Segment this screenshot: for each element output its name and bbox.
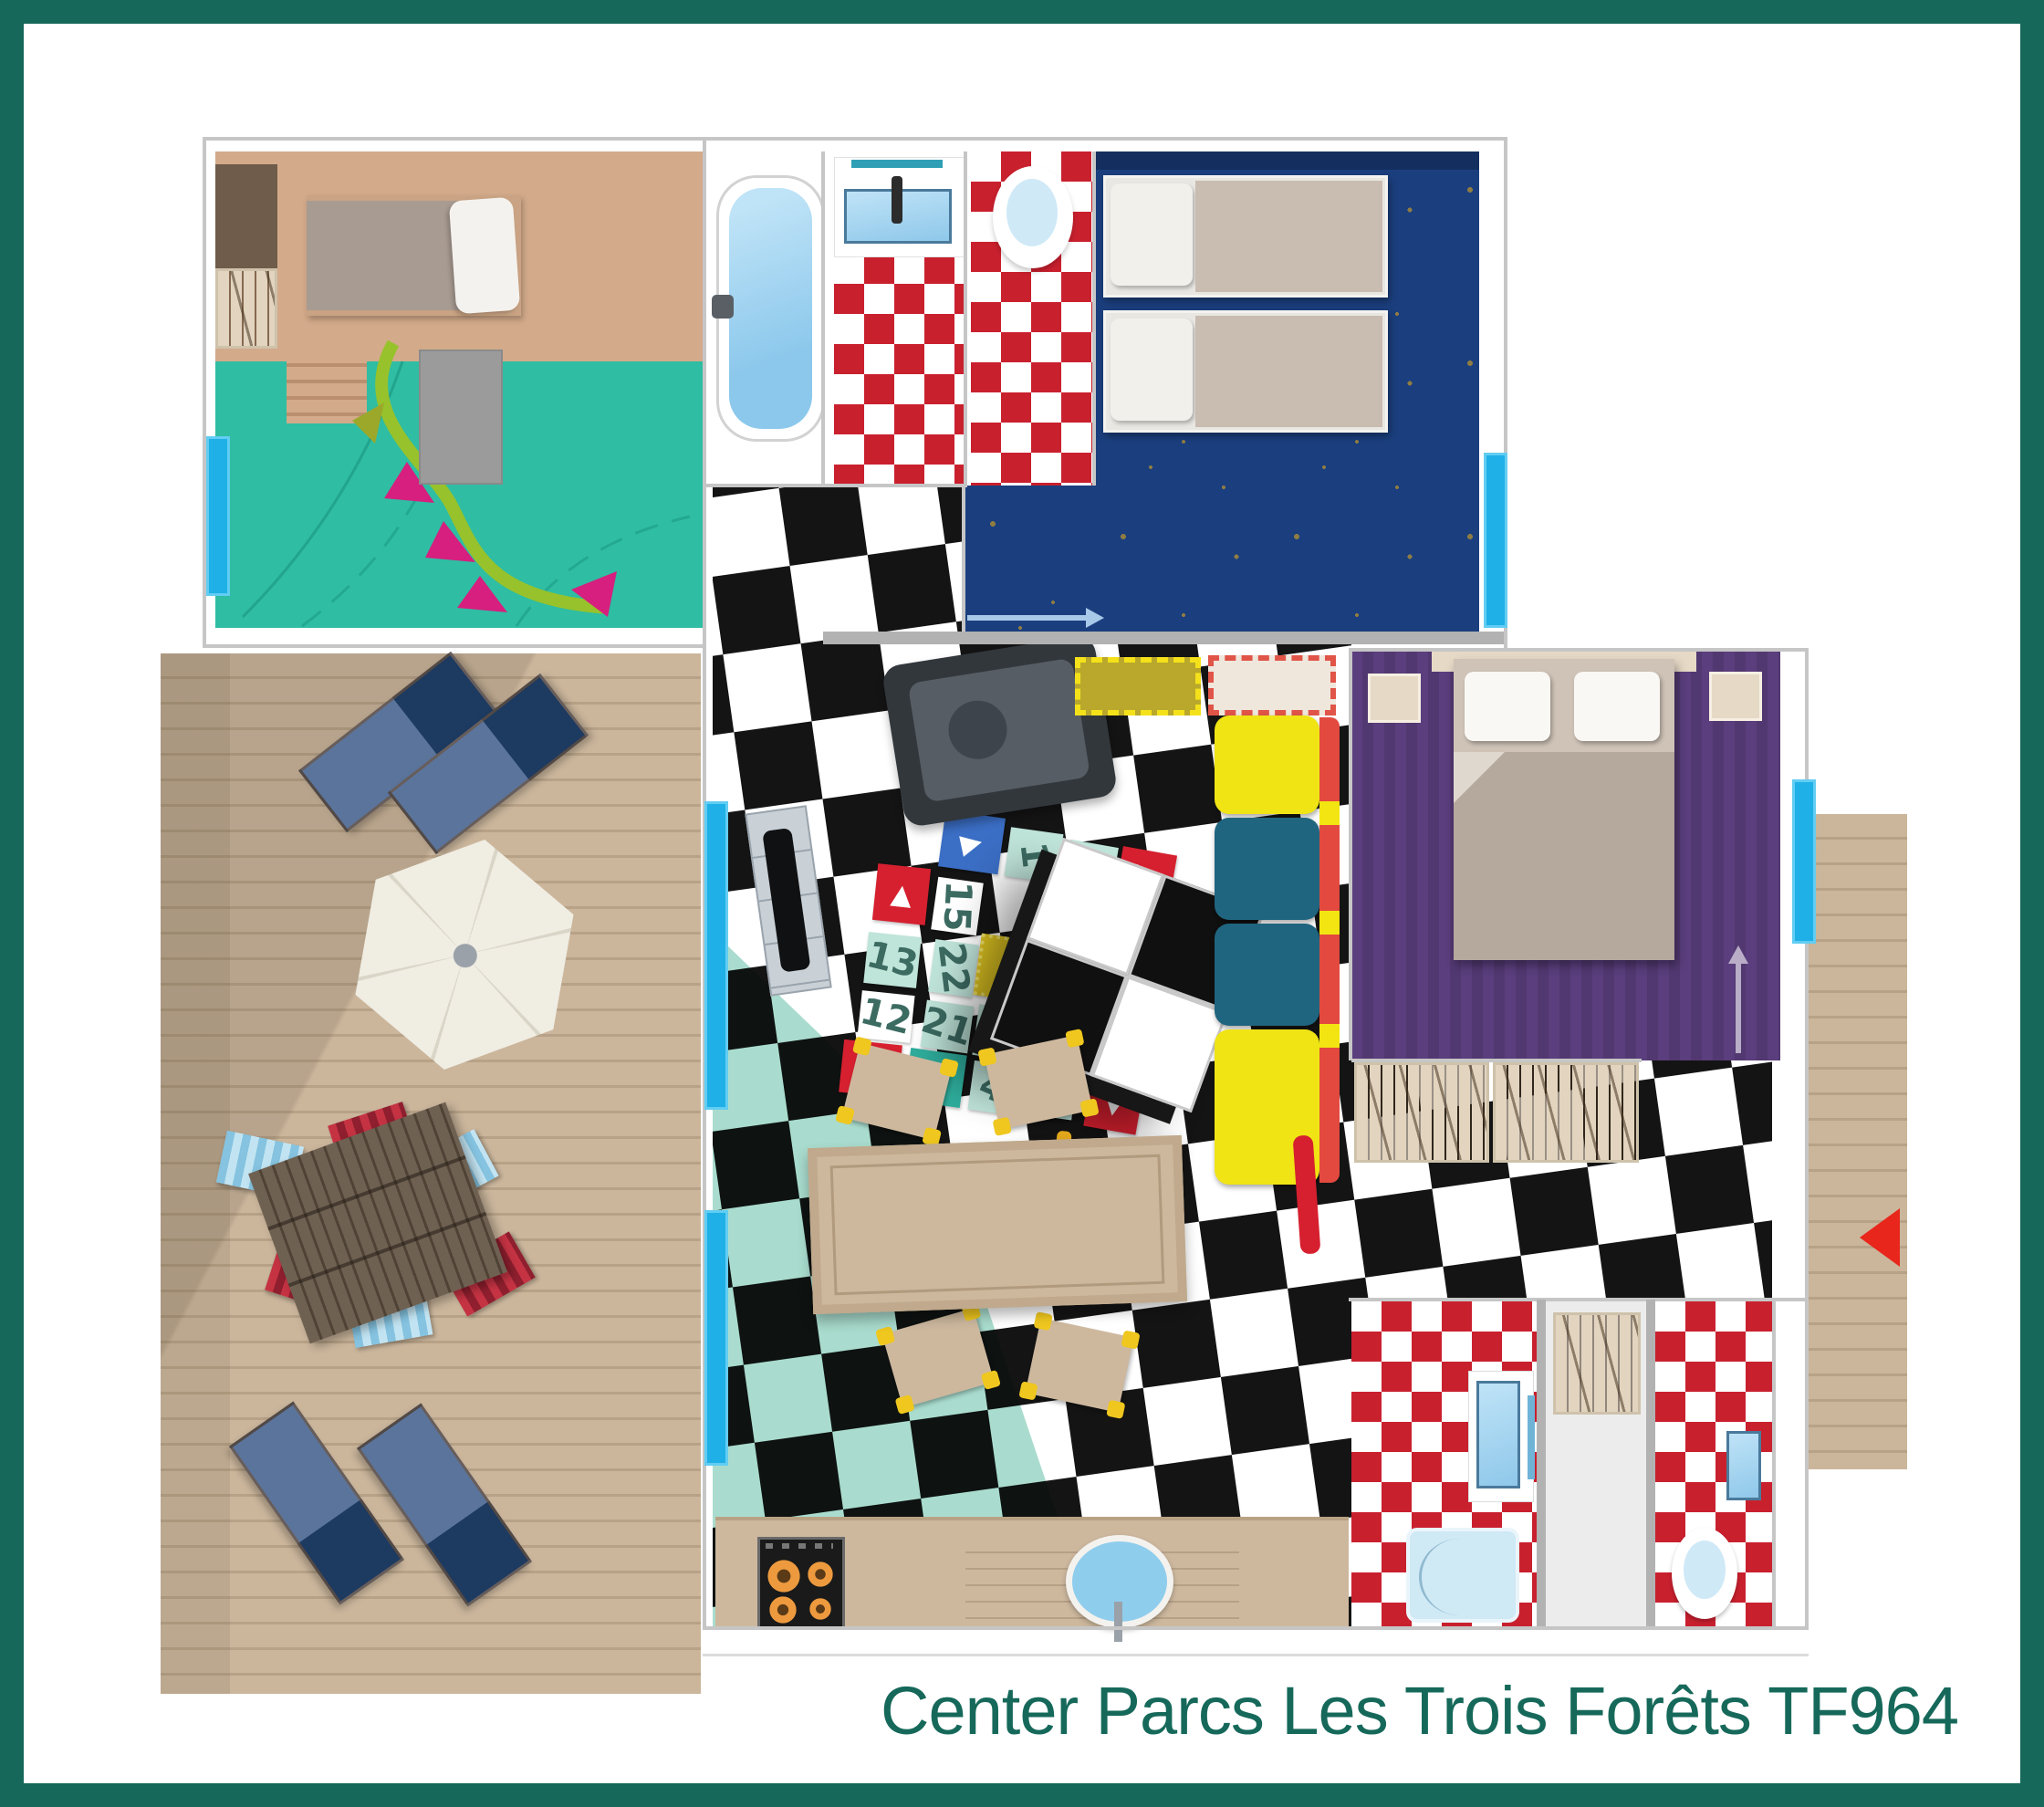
blanket-fold — [1454, 752, 1505, 803]
bed-pillow — [1465, 672, 1550, 741]
door-swing-arrow-icon — [967, 615, 1088, 621]
twin-bed-2 — [1103, 310, 1388, 433]
dining-table — [808, 1135, 1187, 1314]
window — [206, 436, 230, 596]
bathtub — [716, 175, 825, 442]
sofa-cushion-teal — [1215, 924, 1319, 1026]
entrance-arrow-icon — [1860, 1208, 1900, 1267]
terrace-deck-right — [1809, 814, 1907, 1469]
wall — [1351, 648, 1808, 652]
wall — [1772, 1300, 1776, 1628]
vanity-unit — [1468, 1371, 1534, 1502]
wall — [1349, 648, 1352, 1060]
sofa-backrest — [1319, 717, 1340, 1183]
game-tile-22: 22 — [928, 939, 979, 998]
wall — [203, 644, 706, 648]
wardrobe — [1354, 1062, 1489, 1163]
faucet-icon — [892, 176, 902, 224]
toilet — [993, 166, 1073, 268]
vanity-unit — [834, 157, 965, 257]
kids-desk — [419, 350, 503, 485]
game-tile-21: 21 — [921, 1000, 975, 1054]
sink-basin — [1726, 1431, 1761, 1500]
wall — [1646, 1300, 1655, 1628]
wall — [964, 151, 967, 486]
kids-bedroom — [215, 151, 704, 628]
bed-pillow — [1111, 183, 1193, 286]
wall — [962, 484, 965, 635]
wall — [821, 151, 825, 486]
double-bed — [1454, 659, 1674, 960]
wardrobe — [1553, 1312, 1641, 1415]
wall — [1349, 1298, 1807, 1301]
bed-pillow — [1574, 672, 1660, 741]
kids-wardrobe — [215, 164, 277, 268]
tub-faucet-icon — [712, 295, 734, 319]
bathroom-corridor — [1546, 1301, 1646, 1626]
wall — [203, 137, 1507, 141]
bed-pillow — [1111, 319, 1193, 421]
bed-blanket — [1195, 181, 1382, 292]
wash-basin — [1066, 1535, 1173, 1628]
kitchen-counter — [715, 1517, 1349, 1628]
stove — [757, 1537, 845, 1630]
kids-bed — [307, 195, 521, 316]
toilet-room-2 — [1655, 1301, 1772, 1626]
bedroom-purple — [1351, 652, 1780, 1060]
wall — [703, 1626, 1809, 1630]
window — [704, 801, 728, 1110]
wall — [1351, 1059, 1642, 1062]
window — [704, 1210, 728, 1466]
window — [1484, 453, 1507, 628]
game-tile-13: 13 — [863, 932, 922, 988]
door-swing-arrow-icon — [1736, 962, 1741, 1053]
bedroom-navy-entry — [965, 486, 1096, 632]
red-checker-floor — [834, 254, 964, 486]
window — [1792, 779, 1816, 944]
bathroom-shower — [1351, 1301, 1537, 1626]
sofa-cushion-yellow — [1215, 715, 1319, 814]
wardrobe — [1493, 1062, 1639, 1163]
shower — [1406, 1528, 1519, 1623]
wall-counter — [823, 632, 1504, 644]
twin-bed-1 — [1103, 175, 1388, 298]
toilet-room — [971, 151, 1092, 486]
bathroom-sink — [834, 151, 964, 486]
headboard — [1096, 151, 1479, 170]
bed-pillow — [449, 197, 520, 315]
wall — [1092, 151, 1096, 486]
toilet — [1672, 1528, 1737, 1619]
mirror-icon — [1528, 1395, 1535, 1479]
bed-blanket — [1195, 316, 1382, 427]
sofa — [1215, 715, 1319, 1185]
wall-shadow-line — [703, 1654, 1809, 1656]
wall — [703, 484, 967, 487]
game-tile-arrow-up-icon: ▲ — [872, 863, 931, 925]
faucet-icon — [1114, 1602, 1122, 1642]
sink-basin — [1476, 1381, 1520, 1488]
parasol-hub-icon — [452, 942, 479, 969]
wall — [1537, 1300, 1546, 1628]
play-mat-red-dashed — [1208, 655, 1336, 715]
sofa-cushion-teal — [1215, 818, 1319, 920]
plan-title: Center Parcs Les Trois Forêts TF964 — [535, 1672, 1958, 1750]
mirror-icon — [851, 160, 943, 168]
bedroom-navy — [1096, 151, 1479, 632]
tv-screen — [762, 828, 810, 973]
stove-knobs-icon — [766, 1543, 833, 1549]
bed-blanket — [307, 201, 460, 310]
nightstand-left — [1368, 674, 1421, 723]
game-tile-12: 12 — [857, 990, 914, 1043]
game-tile-15: 15 — [931, 877, 984, 935]
nightstand-right — [1709, 672, 1762, 721]
floor-plan-canvas: ▶12▶▲151322122120199◀≡48▼ — [0, 0, 2044, 1807]
play-mat-yellow — [1075, 657, 1201, 715]
